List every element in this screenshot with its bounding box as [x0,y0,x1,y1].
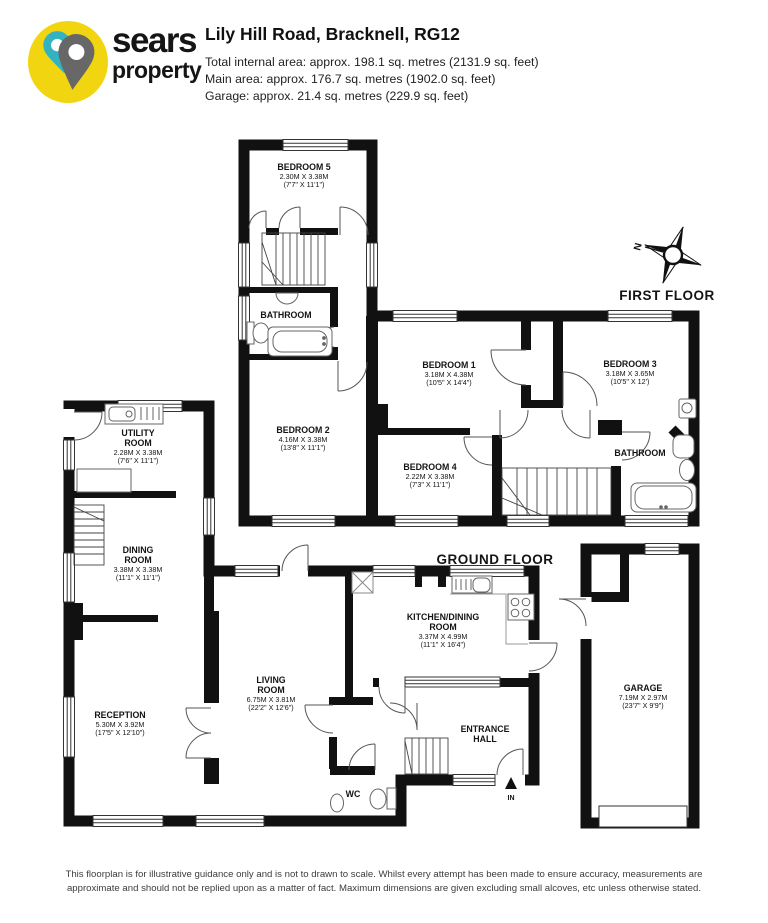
window [93,816,163,827]
window [395,516,458,527]
toilet-icon [387,788,396,809]
window [373,566,415,577]
svg-text:(23'7" X 9'9"): (23'7" X 9'9") [622,701,663,710]
compass-icon: N [632,217,711,294]
svg-text:DINING: DINING [123,545,154,555]
window [453,775,495,786]
room-label-reception: RECEPTION 5.30M X 3.92M (17'5" X 12'10") [94,710,145,737]
svg-text:GARAGE: GARAGE [624,683,663,693]
window [64,553,75,602]
svg-text:HALL: HALL [473,734,497,744]
toilet-icon [253,323,269,343]
svg-text:ENTRANCE: ENTRANCE [461,724,510,734]
svg-text:BEDROOM 1: BEDROOM 1 [422,360,475,370]
floorplan-page: sears property Lily Hill Road, Bracknell… [0,0,768,923]
room-label-bedroom4: BEDROOM 4 2.22M X 3.38M (7'3" X 11'1") [403,462,456,489]
window [283,140,348,151]
svg-text:BEDROOM 4: BEDROOM 4 [403,462,456,472]
internal-glazing [405,677,500,687]
window [393,311,457,322]
window [196,816,264,827]
svg-text:RECEPTION: RECEPTION [94,710,145,720]
room-label-bedroom3: BEDROOM 3 3.18M X 3.65M (10'5" X 12') [603,359,656,386]
floorplan-drawing: BEDROOM 5 2.30M X 3.38M (7'7" X 11'1") B… [0,0,768,923]
svg-text:ROOM: ROOM [124,555,151,565]
first-floor-plan: BEDROOM 5 2.30M X 3.38M (7'7" X 11'1") B… [239,140,715,527]
room-label-bedroom1: BEDROOM 1 3.18M X 4.38M (10'5" X 14'4") [422,360,475,387]
window [64,697,75,757]
svg-text:ROOM: ROOM [124,438,151,448]
shower-icon [673,435,694,458]
window [608,311,672,322]
room-label-wc: WC [346,789,361,799]
window [204,498,215,535]
window [235,566,278,577]
svg-text:KITCHEN/DINING: KITCHEN/DINING [407,612,479,622]
sink-icon [680,460,695,481]
stove-icon [508,594,534,620]
disclaimer-line1: This floorplan is for illustrative guida… [0,868,768,882]
room-label-bathroom-first-right: BATHROOM [614,448,665,458]
svg-text:(22'2" X 12'6"): (22'2" X 12'6") [248,703,293,712]
window [367,243,378,287]
svg-text:(7'3" X 11'1"): (7'3" X 11'1") [410,480,451,489]
svg-text:BEDROOM 5: BEDROOM 5 [277,162,330,172]
in-label: IN [508,795,515,802]
garage-door [599,806,687,827]
svg-text:ROOM: ROOM [429,622,456,632]
room-label-bedroom2: BEDROOM 2 4.16M X 3.38M (13'8" X 11'1") [276,425,329,452]
svg-text:BEDROOM 3: BEDROOM 3 [603,359,656,369]
svg-text:(10'5" X 12'): (10'5" X 12') [611,377,650,386]
window [450,566,524,577]
sink-icon [331,794,344,812]
svg-text:ROOM: ROOM [257,685,284,695]
svg-text:LIVING: LIVING [256,675,285,685]
svg-text:(17'5" X 12'10"): (17'5" X 12'10") [95,728,144,737]
disclaimer: This floorplan is for illustrative guida… [0,868,768,896]
window [64,440,75,470]
svg-text:(11'1" X 16'4"): (11'1" X 16'4") [421,640,466,649]
svg-text:UTILITY: UTILITY [121,428,154,438]
svg-text:(10'5" X 14'4"): (10'5" X 14'4") [426,378,471,387]
window [239,243,250,287]
room-label-bathroom-first-left: BATHROOM [260,310,311,320]
toilet-icon [370,789,386,809]
worktop [77,469,131,492]
first-floor-title: FIRST FLOOR [619,288,715,303]
window [507,516,549,527]
window [272,516,335,527]
window [625,516,688,527]
compass-north-label: N [632,242,644,252]
ground-floor-title: GROUND FLOOR [437,552,554,567]
room-label-garage: GARAGE 7.19M X 2.97M (23'7" X 9'9") [619,683,668,710]
svg-text:BEDROOM 2: BEDROOM 2 [276,425,329,435]
room-label-bedroom5: BEDROOM 5 2.30M X 3.38M (7'7" X 11'1") [277,162,330,189]
disclaimer-line2: approximate and should not be replied up… [0,882,768,896]
svg-text:(11'1" X 11'1"): (11'1" X 11'1") [116,573,160,582]
window [645,544,679,555]
svg-text:(7'7" X 11'1"): (7'7" X 11'1") [284,180,325,189]
svg-text:(7'6" X 11'1"): (7'6" X 11'1") [118,456,159,465]
svg-text:(13'8" X 11'1"): (13'8" X 11'1") [281,443,326,452]
